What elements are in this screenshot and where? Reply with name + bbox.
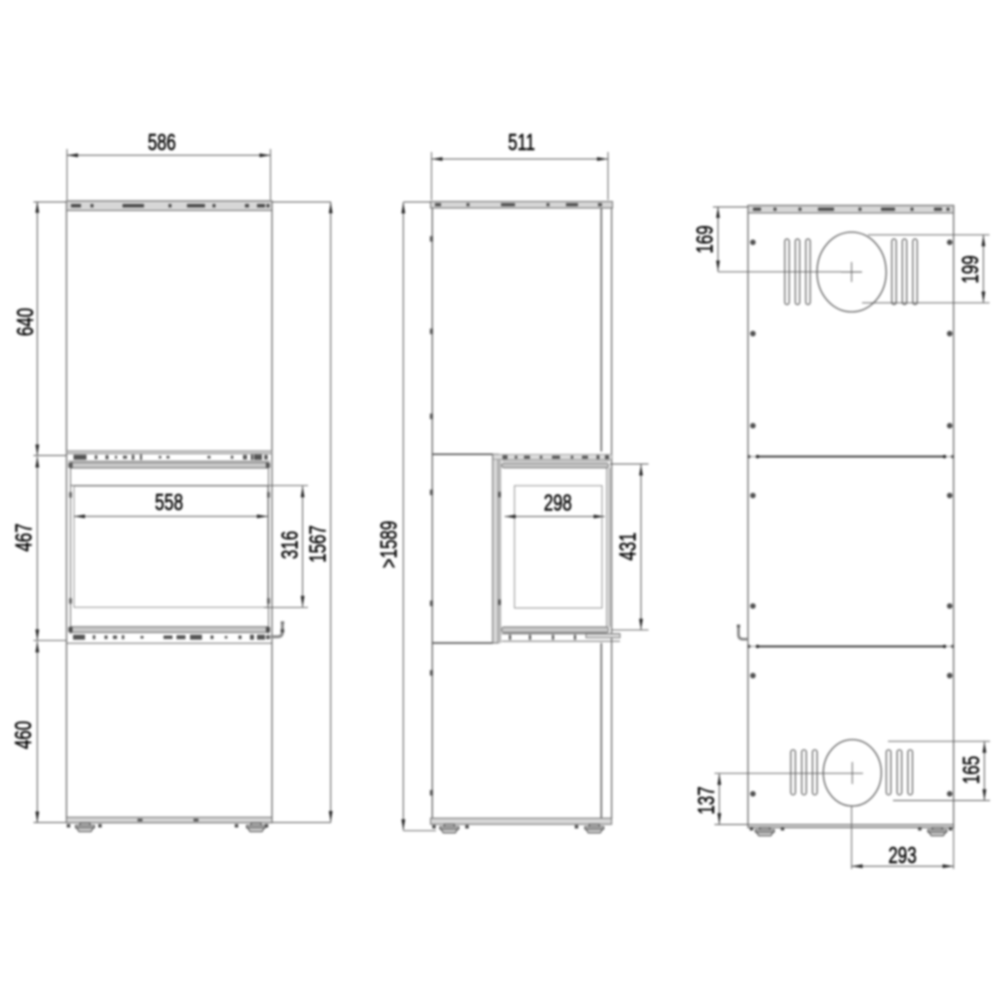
svg-text:460: 460 (10, 721, 36, 749)
svg-text:511: 511 (508, 129, 535, 155)
svg-text:199: 199 (957, 255, 983, 283)
svg-text:298: 298 (544, 490, 572, 516)
svg-text:137: 137 (693, 786, 719, 814)
svg-text:431: 431 (615, 532, 641, 560)
svg-text:640: 640 (12, 308, 38, 336)
svg-text:558: 558 (155, 489, 183, 515)
svg-text:165: 165 (958, 756, 984, 784)
svg-text:586: 586 (148, 129, 176, 155)
svg-text:169: 169 (692, 225, 718, 253)
svg-text:1567: 1567 (305, 525, 331, 563)
svg-text:467: 467 (11, 523, 37, 551)
svg-text:316: 316 (277, 531, 303, 559)
svg-text:>1589: >1589 (376, 521, 402, 569)
svg-text:293: 293 (888, 842, 916, 868)
